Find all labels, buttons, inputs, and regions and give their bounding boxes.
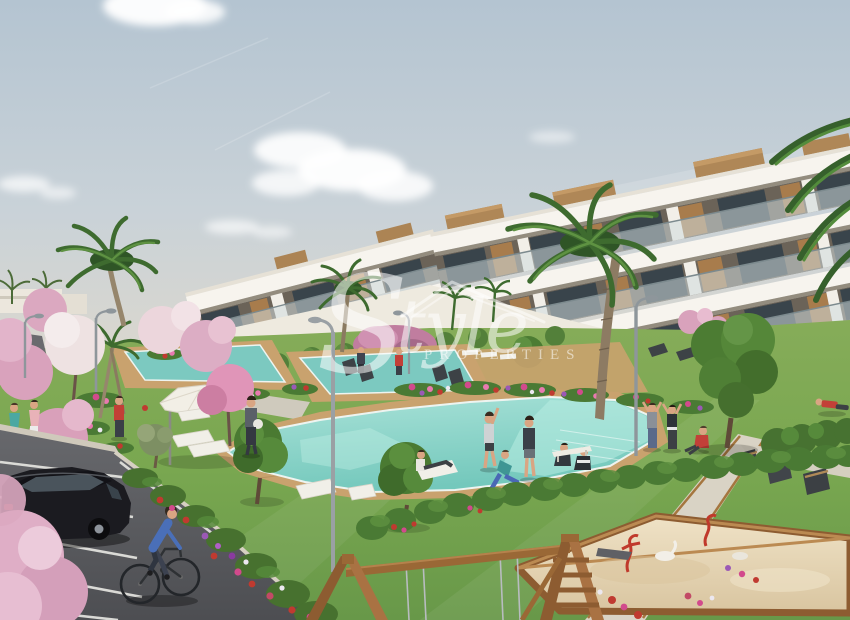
- watermark-caps: PROPERTIES: [424, 347, 581, 363]
- render-canvas: S tyle PROPERTIES: [0, 0, 850, 620]
- watermark-script-initial: S: [316, 247, 408, 404]
